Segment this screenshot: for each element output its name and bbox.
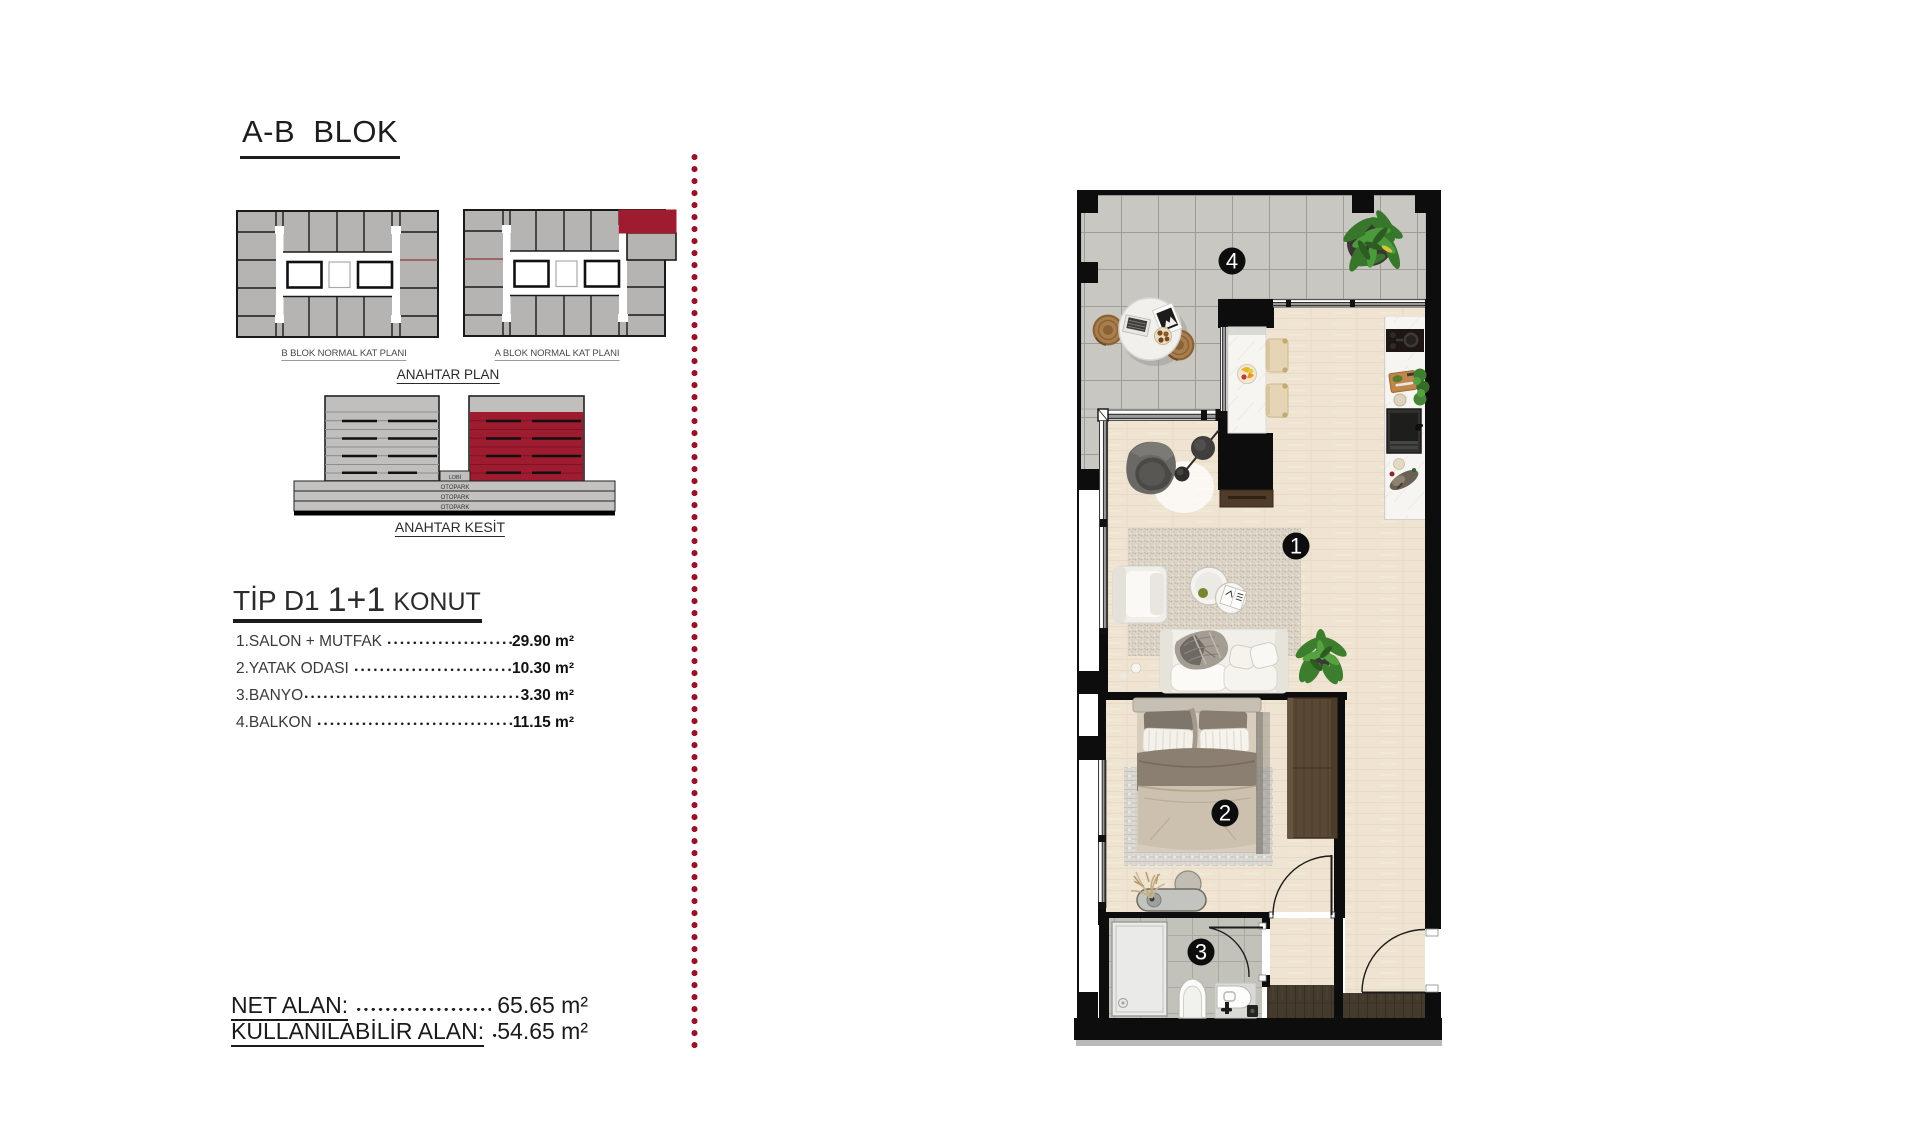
svg-text:4: 4 (1226, 249, 1238, 274)
svg-text:1: 1 (1290, 534, 1302, 559)
svg-text:LOBİ: LOBİ (449, 474, 462, 481)
svg-text:2: 2 (1219, 801, 1231, 826)
svg-text:3: 3 (1195, 940, 1207, 965)
svg-text:OTOPARK: OTOPARK (441, 485, 470, 491)
svg-text:OTOPARK: OTOPARK (441, 505, 470, 511)
svg-text:OTOPARK: OTOPARK (441, 495, 470, 501)
